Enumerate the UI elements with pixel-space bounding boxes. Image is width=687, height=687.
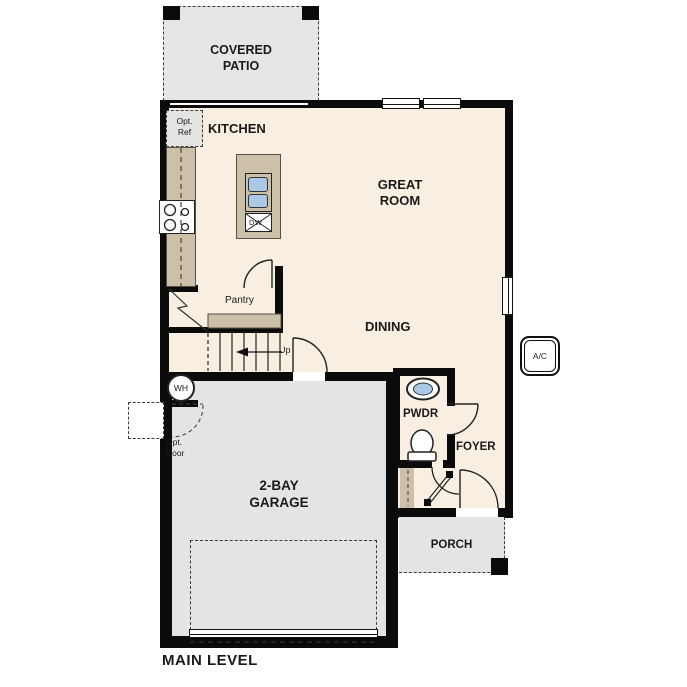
optional-door-stoop xyxy=(128,402,164,439)
patio-slider-track xyxy=(170,103,308,105)
wall-pwdr-left xyxy=(393,368,400,468)
kitchen-label: KITCHEN xyxy=(208,121,266,136)
optional-refrigerator: Opt. Ref xyxy=(166,110,203,147)
ac-label: A/C xyxy=(533,351,547,361)
wall-pantry-right xyxy=(275,266,283,330)
water-heater: WH xyxy=(167,374,195,402)
porch-label: PORCH xyxy=(431,539,473,551)
main-level-title: MAIN LEVEL xyxy=(162,652,258,669)
window-great-room-2 xyxy=(423,98,461,109)
wall-pwdr-right-upper xyxy=(447,368,455,406)
porch-post xyxy=(491,558,508,575)
cooktop xyxy=(159,200,195,234)
covered-patio-label: COVERED PATIO xyxy=(193,43,289,74)
garage-door xyxy=(189,629,378,638)
island-sink-basin-2 xyxy=(248,194,268,208)
island-sink-basin-1 xyxy=(248,177,268,192)
garage-label: 2-BAY GARAGE xyxy=(199,478,359,512)
garage-door-clearance xyxy=(190,540,377,630)
wall-pwdr-top xyxy=(393,368,455,376)
dining-label: DINING xyxy=(365,319,411,334)
pantry-label: Pantry xyxy=(225,295,254,306)
floor-plan: COVERED PATIO Opt. Ref DW KITCHEN GREAT … xyxy=(0,0,687,687)
patio-post-right xyxy=(302,6,319,20)
up-label: Up xyxy=(279,345,291,355)
pwdr-label: PWDR xyxy=(403,408,438,420)
porch-area: PORCH xyxy=(399,517,505,573)
optional-door-label: Opt. Door xyxy=(166,437,198,458)
ac-unit: A/C xyxy=(520,336,560,376)
window-dining-right xyxy=(502,277,513,315)
great-room-label: GREAT ROOM xyxy=(355,177,445,210)
window-great-room-1 xyxy=(382,98,420,109)
ac-unit-inner: A/C xyxy=(524,340,556,372)
patio-post-left xyxy=(163,6,180,20)
dishwasher-label: DW xyxy=(249,218,263,227)
wall-entry-top-2 xyxy=(443,460,455,468)
wall-stairs-top xyxy=(168,327,283,333)
foyer-label: FOYER xyxy=(456,441,496,453)
wall-entry-top-1 xyxy=(393,460,432,468)
